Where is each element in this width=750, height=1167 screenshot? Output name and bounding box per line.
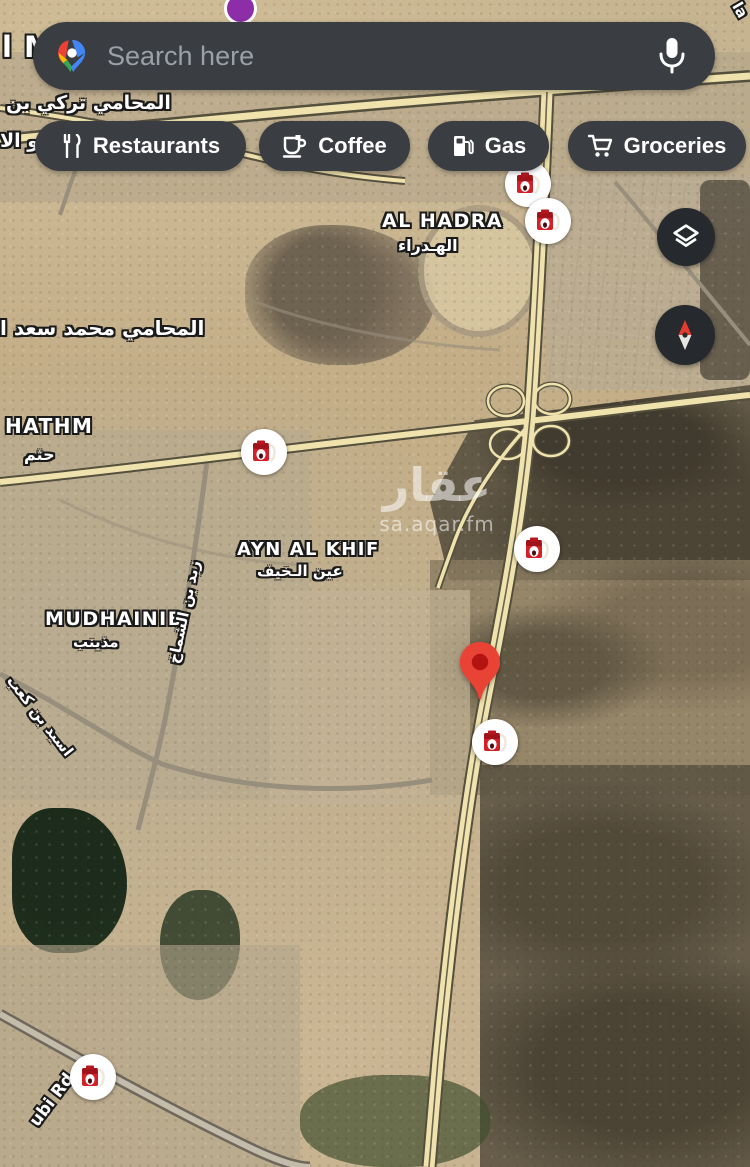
chip-label: Restaurants: [93, 133, 220, 159]
compass-button[interactable]: [655, 305, 715, 365]
map-label-arabic: المحامي تركي بن: [6, 92, 171, 114]
search-bar[interactable]: Search here: [33, 22, 715, 90]
chip-label: Groceries: [624, 133, 727, 159]
gas-station-marker[interactable]: [241, 429, 287, 475]
map-label-district: AYN AL KHIF: [237, 539, 380, 560]
gas-station-marker[interactable]: [514, 526, 560, 572]
map-canvas[interactable]: عقار sa.aqar.fm Search here: [0, 0, 750, 1167]
groceries-icon: [588, 134, 614, 158]
restaurants-icon: [61, 134, 83, 158]
map-label-district: MUDHAINIB: [45, 608, 184, 630]
gas-station-marker[interactable]: [525, 198, 571, 244]
map-label-district: HATHM: [5, 414, 93, 438]
microphone-icon[interactable]: [657, 36, 687, 76]
compass-icon: [667, 317, 703, 353]
chip-groceries[interactable]: Groceries: [568, 121, 746, 171]
chip-label: Coffee: [318, 133, 386, 159]
coffee-icon: [282, 134, 308, 158]
layers-button[interactable]: [657, 208, 715, 266]
google-maps-logo: [55, 39, 89, 73]
chip-coffee[interactable]: Coffee: [259, 121, 410, 171]
roads-layer: [0, 0, 750, 1167]
map-label-arabic: المحامي محمد سعد ا: [0, 316, 204, 340]
chip-restaurants[interactable]: Restaurants: [35, 121, 246, 171]
map-label-arabic: مذينب: [73, 633, 119, 651]
gas-icon: [451, 134, 475, 158]
map-label-arabic: الهـدراء: [398, 236, 458, 255]
chip-label: Gas: [485, 133, 527, 159]
destination-pin[interactable]: [458, 640, 502, 708]
layers-icon: [670, 221, 702, 253]
map-label-district: AL HADRA: [382, 210, 503, 232]
search-input[interactable]: Search here: [107, 41, 657, 72]
gas-station-marker[interactable]: [472, 719, 518, 765]
chip-gas[interactable]: Gas: [428, 121, 549, 171]
gas-station-marker[interactable]: [70, 1054, 116, 1100]
map-label-arabic: و الا: [0, 130, 39, 152]
map-label-arabic: عين الـخيف: [257, 562, 343, 580]
map-label-arabic: حثم: [24, 445, 55, 464]
